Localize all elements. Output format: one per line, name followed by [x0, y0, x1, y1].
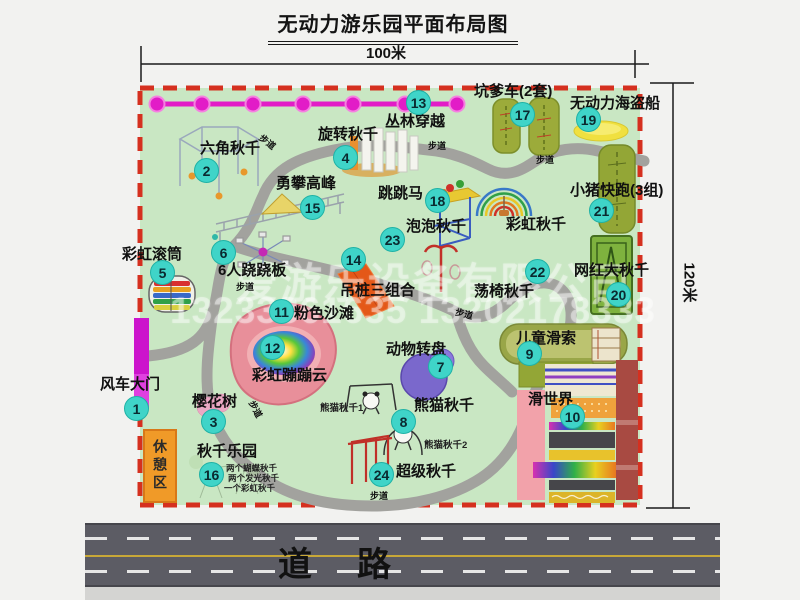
swing-park-detail: 两个蝴蝶秋千: [226, 464, 277, 473]
swing-park-detail: 一个彩虹秋千: [224, 484, 275, 493]
label-swing-park: 秋千乐园: [197, 444, 257, 459]
marker-3: 3: [201, 409, 226, 434]
marker-23: 23: [380, 227, 405, 252]
label-chair-swing: 荡椅秋千: [474, 284, 534, 299]
marker-14: 14: [341, 247, 366, 272]
label-windmill-gate: 风车大门: [100, 377, 160, 392]
label-pit-cart: 坑爹车(2套): [474, 84, 552, 99]
panda-swing-1-label: 熊猫秋千1: [320, 404, 363, 414]
marker-17: 17: [510, 102, 535, 127]
marker-7: 7: [428, 354, 453, 379]
label-jump-horse: 跳跳马: [378, 186, 423, 201]
label-bubble-swing: 泡泡秋千: [406, 219, 466, 234]
marker-12: 12: [260, 335, 285, 360]
marker-18: 18: [425, 188, 450, 213]
marker-15: 15: [300, 195, 325, 220]
marker-9: 9: [517, 341, 542, 366]
windmill-gate-structure: [134, 318, 149, 408]
marker-22: 22: [525, 259, 550, 284]
marker-20: 20: [606, 282, 631, 307]
label-pink-beach: 粉色沙滩: [294, 306, 354, 321]
marker-16: 16: [199, 462, 224, 487]
marker-19: 19: [576, 107, 601, 132]
walkway-label: 步道: [236, 283, 254, 292]
marker-1: 1: [124, 396, 149, 421]
panda-swing-2-label: 熊猫秋千2: [424, 441, 467, 451]
swing-park-detail: 两个发光秋千: [228, 474, 279, 483]
label-climbing-peak: 勇攀高峰: [276, 176, 336, 191]
walkway-label: 步道: [370, 492, 388, 501]
label-pig-run: 小猪快跑(3组): [570, 183, 663, 198]
marker-8: 8: [391, 409, 416, 434]
marker-2: 2: [194, 158, 219, 183]
walkway-label: 步道: [536, 156, 554, 165]
label-rainbow-cloud: 彩虹蹦蹦云: [252, 368, 327, 383]
label-hexagon-swing: 六角秋千: [200, 141, 260, 156]
marker-13: 13: [406, 90, 431, 115]
marker-5: 5: [150, 260, 175, 285]
marker-6: 6: [211, 240, 236, 265]
marker-4: 4: [333, 145, 358, 170]
road-shoulder: [85, 587, 720, 600]
label-cherry-tree: 樱花树: [192, 394, 237, 409]
label-super-swing: 超级秋千: [396, 464, 456, 479]
rest-area: 休憩区: [143, 429, 177, 503]
label-panda-swing: 熊猫秋千: [414, 398, 474, 413]
road-label: 道路: [278, 537, 436, 586]
label-rainbow-swing: 彩虹秋千: [506, 217, 566, 232]
label-jungle-crossing: 丛林穿越: [385, 114, 445, 129]
marker-11: 11: [269, 299, 294, 324]
marker-24: 24: [369, 462, 394, 487]
label-hanging-pile: 吊桩三组合: [340, 283, 415, 298]
label-rainbow-roller: 彩虹滚筒: [122, 247, 182, 262]
marker-10: 10: [560, 404, 585, 429]
marker-21: 21: [589, 198, 614, 223]
label-seesaw: 6人跷跷板: [218, 263, 286, 278]
walkway-label: 步道: [428, 142, 446, 151]
label-big-swing: 网红大秋千: [574, 263, 649, 278]
park-map-graphic: [0, 0, 800, 600]
label-rotating-swing: 旋转秋千: [318, 127, 378, 142]
park-plan-page: 无动力游乐园平面布局图 100米 120米: [0, 0, 800, 600]
